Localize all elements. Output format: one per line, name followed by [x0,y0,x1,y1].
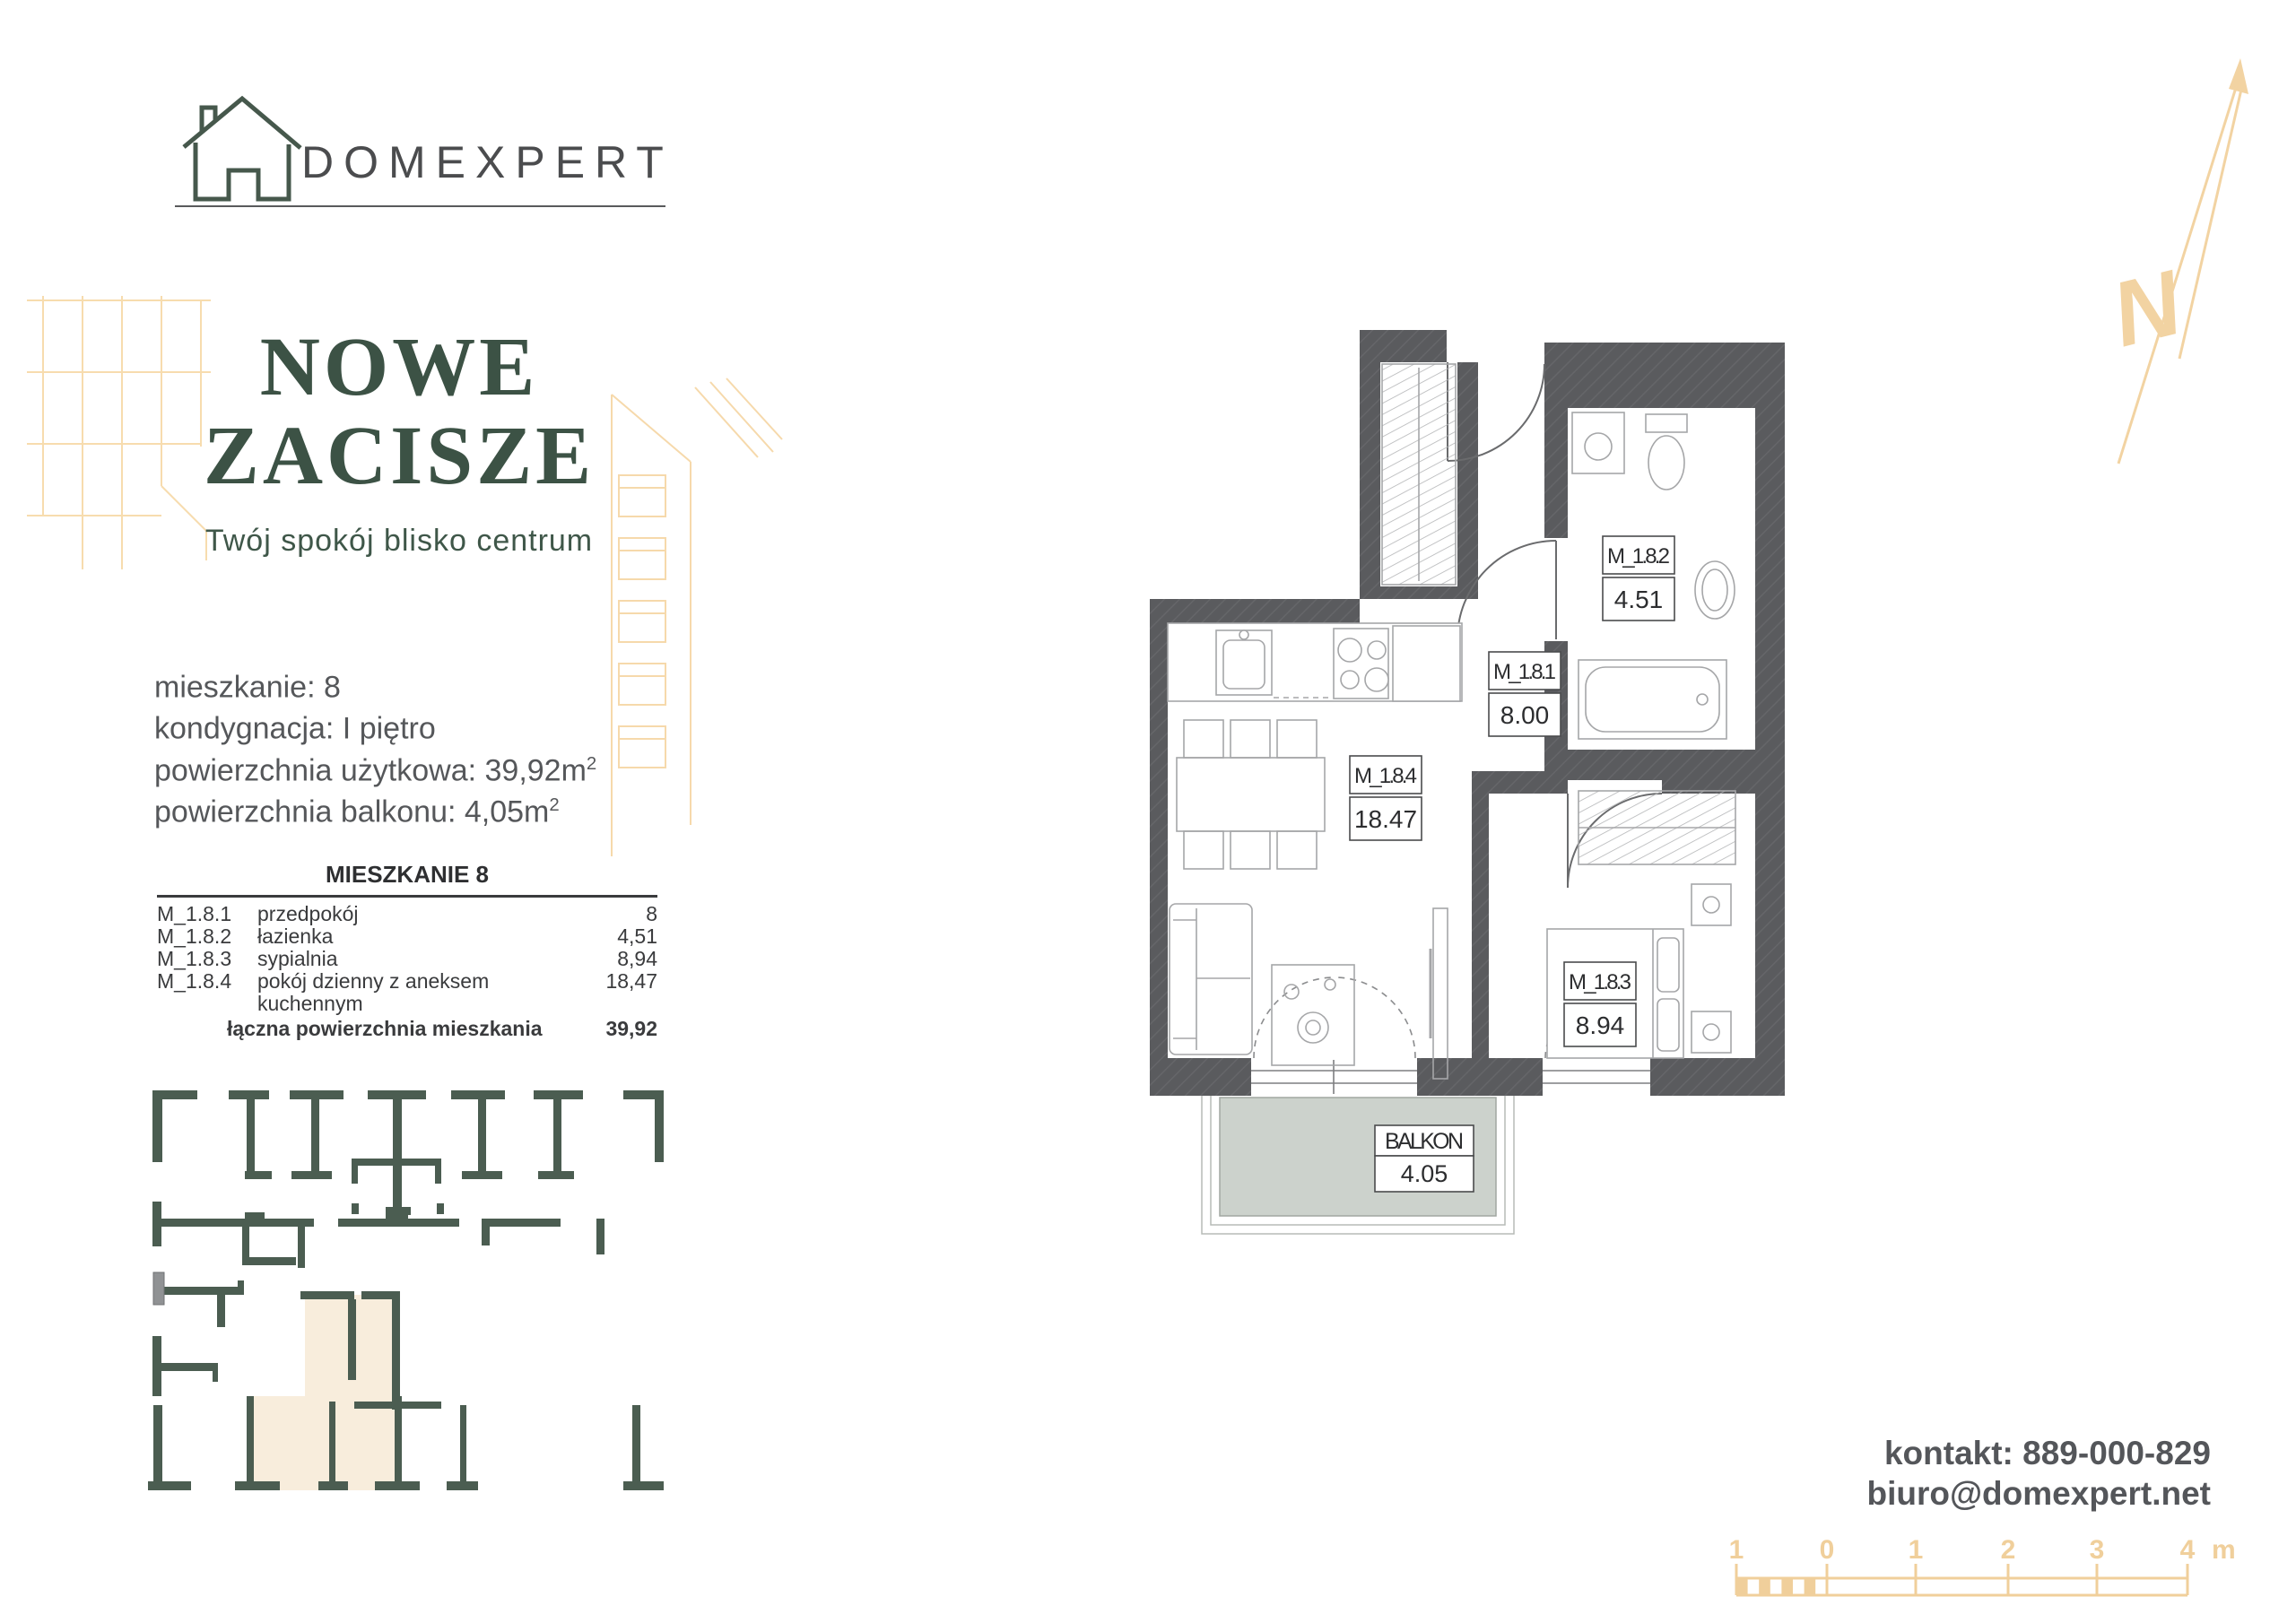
room-name: pokój dzienny z aneksem kuchennym [257,970,581,1015]
room-code: M_1.8.2 [1607,544,1670,568]
room-name: łazienka [257,925,581,948]
area-table-title: MIESZKANIE 8 [157,861,657,889]
room-name: przedpokój [257,903,581,925]
bathtub [1578,660,1726,739]
table-row: M_1.8.1 przedpokój 8 [157,903,657,925]
tv-cabinet [1433,908,1448,1079]
room-code: M_1.8.2 [157,925,257,948]
faucet [1239,630,1248,639]
room-code: BALKON [1385,1129,1464,1154]
label-bathroom: M_1.8.2 4.51 [1603,536,1674,621]
kitchen-counter [1168,623,1462,701]
total-value: 39,92 [581,1018,657,1040]
table-row: M_1.8.2 łazienka 4,51 [157,925,657,948]
key-plan [94,1087,677,1495]
room-code: M_1.8.1 [1493,660,1556,684]
room-area: 8.00 [1500,701,1550,729]
highlighted-unit [247,1295,400,1490]
project-title-line1: NOWE [135,323,664,412]
area-table: MIESZKANIE 8 M_1.8.1 przedpokój 8 M_1.8.… [157,861,657,1040]
table-row: M_1.8.3 sypialnia 8,94 [157,948,657,970]
contact-email: biuro@domexpert.net [1867,1473,2212,1514]
brand-divider [175,205,665,207]
key-plan-entrance [153,1272,164,1305]
room-code: M_1.8.4 [1354,764,1417,788]
bathroom-fixtures [1572,412,1735,739]
contact-block: kontakt: 889-000-829 biuro@domexpert.net [1867,1433,2212,1514]
north-arrow: N [2090,49,2278,480]
room-area: 18,47 [581,970,657,1015]
total-label: łączna powierzchnia mieszkania [157,1018,581,1040]
room-code: M_1.8.3 [157,948,257,970]
room-code: M_1.8.4 [157,970,257,1015]
label-hallway: M_1.8.1 8.00 [1489,652,1561,736]
brand-name: DOMEXPERT [301,136,674,188]
contact-phone: kontakt: 889-000-829 [1867,1433,2212,1473]
scale-label: 3 [2090,1535,2105,1565]
room-name: sypialnia [257,948,581,970]
toilet-tank [1646,414,1687,432]
table-row: M_1.8.4 pokój dzienny z aneksem kuchenny… [157,970,657,1015]
room-area: 8,94 [581,948,657,970]
dining-set [1177,720,1325,869]
area-table-rule [157,895,657,898]
table-total-row: łączna powierzchnia mieszkania 39,92 [157,1018,657,1040]
room-area: 4.05 [1401,1160,1448,1187]
info-line-usable-area: powierzchnia użytkowa: 39,92m2 [154,747,596,788]
pillow [1657,938,1679,992]
room-code: M_1.8.1 [157,903,257,925]
label-living-room: M_1.8.4 18.47 [1350,756,1422,840]
scale-label: 1 [1909,1535,1924,1565]
room-area: 4,51 [581,925,657,948]
sofa [1170,904,1252,1055]
scale-unit: m [2212,1535,2236,1565]
scale-label: 1 [1729,1535,1744,1565]
scale-label: 4 [2180,1535,2196,1565]
nightstand [1692,1011,1731,1053]
project-title-block: NOWE ZACISZE Twój spokój blisko centrum [135,323,664,559]
fridge [1393,626,1460,701]
key-plan-walls [148,1090,664,1490]
room-area: 8 [581,903,657,925]
room-area: 18.47 [1354,805,1417,833]
coffee-table [1272,965,1354,1065]
scale-bar: 1 0 1 2 3 4 m [1720,1533,2258,1610]
brochure-page: DOMEXPERT NOWE ZACISZE Twój spokój blisk… [0,0,2296,1623]
floor-plan: M_1.8.1 8.00 M_1.8.2 4.51 M_1.8.3 8.94 M… [1137,321,1792,1254]
room-area: 8.94 [1576,1011,1625,1039]
scale-label: 0 [1820,1535,1835,1565]
hallway-wardrobe [1382,364,1456,585]
info-line-unit: mieszkanie: 8 [154,664,596,705]
toilet [1648,436,1684,490]
house-body [196,143,289,199]
project-title-line2: ZACISZE [135,412,664,500]
unit-info: mieszkanie: 8 kondygnacja: I piętro powi… [154,664,596,829]
washing-machine [1572,412,1624,473]
info-line-floor: kondygnacja: I piętro [154,705,596,746]
room-area: 4.51 [1614,586,1664,613]
label-bedroom: M_1.8.3 8.94 [1564,962,1636,1046]
pillow [1657,999,1679,1051]
scale-checker [1736,1579,1815,1594]
nightstand [1692,884,1731,925]
project-subtitle: Twój spokój blisko centrum [135,524,664,559]
label-balcony: BALKON 4.05 [1375,1125,1474,1192]
living-furniture [1170,904,1448,1079]
scale-label: 2 [2001,1535,2016,1565]
house-logo-icon [179,91,305,204]
info-line-balcony-area: powierzchnia balkonu: 4,05m2 [154,788,596,829]
room-code: M_1.8.3 [1569,970,1631,994]
